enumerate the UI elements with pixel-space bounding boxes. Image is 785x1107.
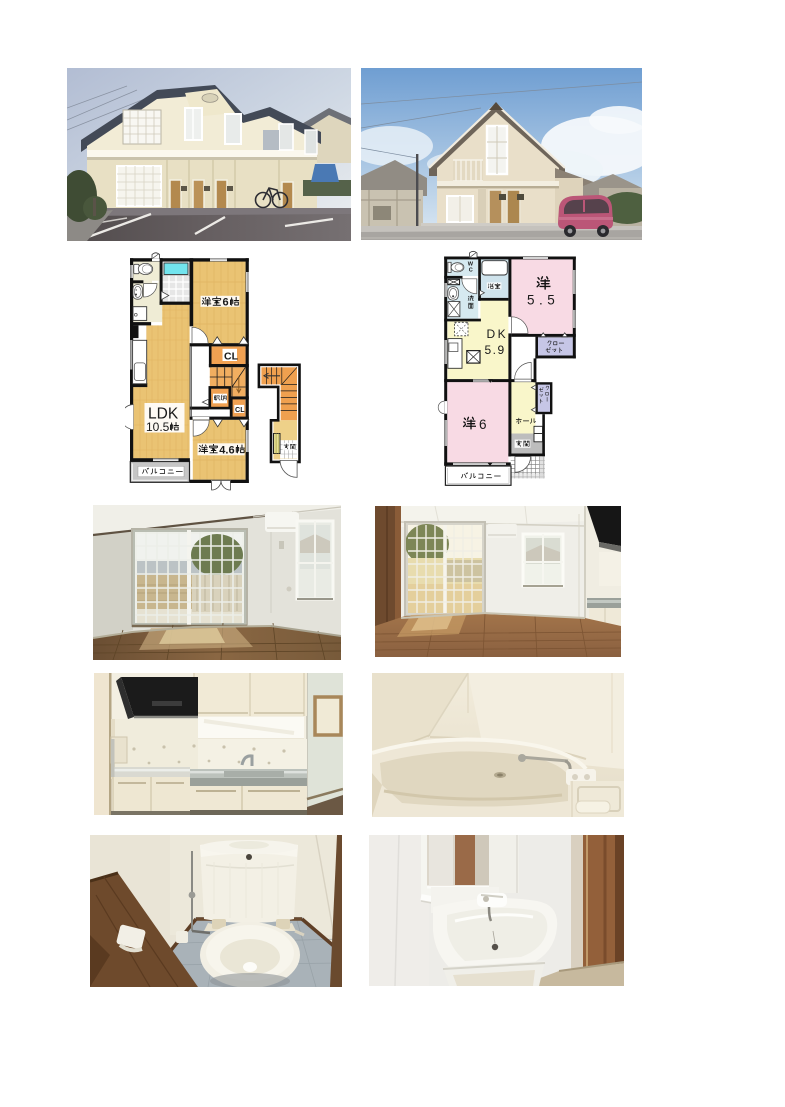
svg-text:5.9: 5.9: [485, 343, 506, 357]
svg-text:5.5: 5.5: [527, 293, 559, 308]
svg-text:4.6: 4.6: [219, 444, 234, 456]
svg-text:CL: CL: [235, 405, 245, 414]
svg-text:6: 6: [223, 297, 229, 309]
svg-text:6: 6: [479, 417, 487, 432]
svg-text:C: C: [469, 268, 473, 274]
svg-text:CL: CL: [224, 350, 239, 362]
svg-text:10.5: 10.5: [146, 420, 170, 434]
svg-text:W: W: [468, 261, 474, 267]
svg-text:DK: DK: [487, 327, 509, 341]
